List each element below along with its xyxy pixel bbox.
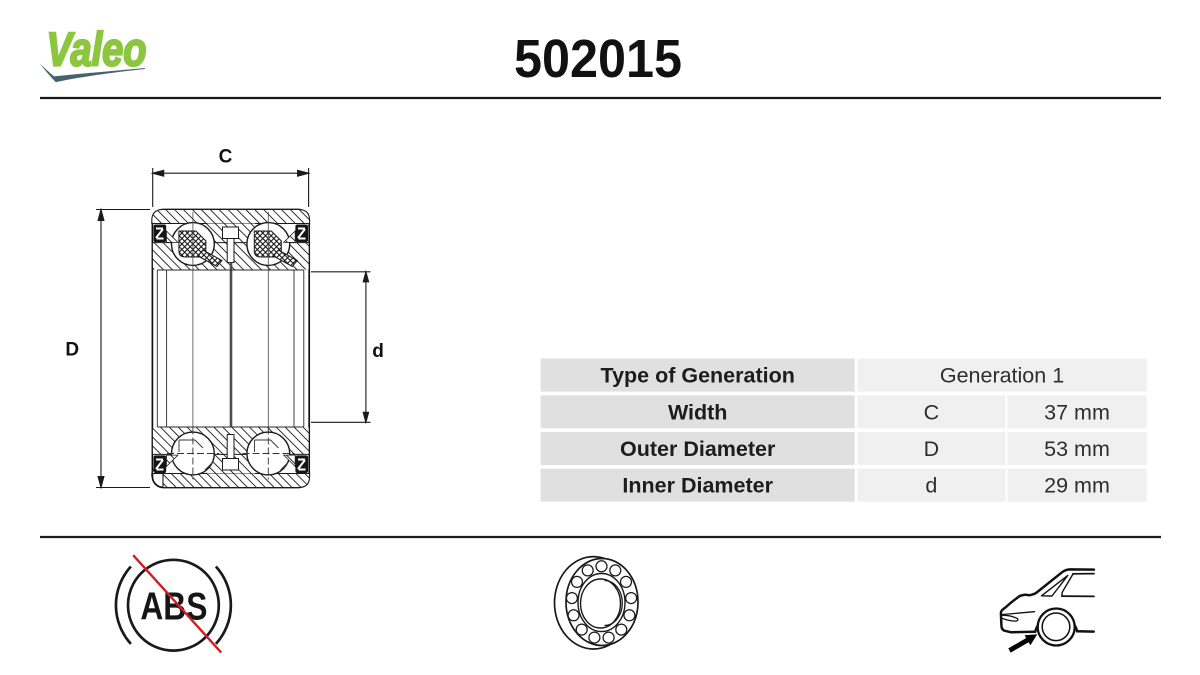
svg-text:D: D xyxy=(924,437,940,461)
svg-text:C: C xyxy=(219,146,233,167)
svg-text:C: C xyxy=(924,400,940,424)
svg-text:Inner Diameter: Inner Diameter xyxy=(622,474,773,498)
svg-text:d: d xyxy=(925,474,937,498)
svg-text:29 mm: 29 mm xyxy=(1044,474,1110,498)
svg-text:ABS: ABS xyxy=(140,585,207,628)
svg-text:d: d xyxy=(372,341,384,362)
svg-text:Type of Generation: Type of Generation xyxy=(601,364,795,388)
svg-text:D: D xyxy=(65,339,79,360)
svg-text:Valeo: Valeo xyxy=(47,23,147,76)
svg-text:Width: Width xyxy=(668,400,728,424)
svg-text:Outer Diameter: Outer Diameter xyxy=(620,437,776,461)
svg-text:502015: 502015 xyxy=(514,30,682,89)
svg-text:Generation 1: Generation 1 xyxy=(940,364,1064,388)
svg-text:37 mm: 37 mm xyxy=(1044,400,1110,424)
svg-text:53 mm: 53 mm xyxy=(1044,437,1110,461)
